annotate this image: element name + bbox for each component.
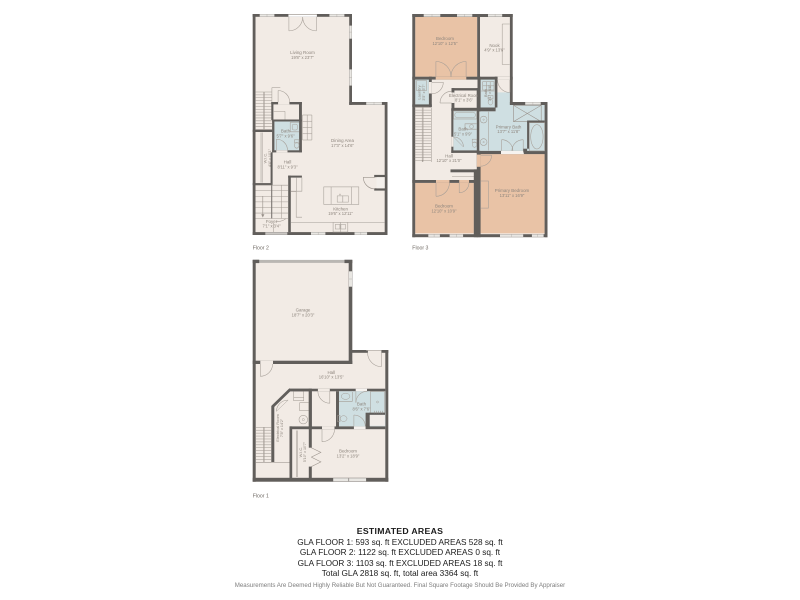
svg-text:W.I.C.: W.I.C. [298, 447, 303, 458]
svg-text:Floor 3: Floor 3 [412, 246, 428, 252]
svg-text:19'8" x 23'7": 19'8" x 23'7" [291, 55, 314, 60]
svg-text:13'2" x 18'9": 13'2" x 18'9" [337, 454, 360, 459]
svg-text:3'1" x 6'6": 3'1" x 6'6" [488, 84, 492, 101]
svg-text:12'10" x 10'9": 12'10" x 10'9" [431, 209, 457, 214]
svg-text:8'6" x 7'6": 8'6" x 7'6" [352, 407, 371, 412]
svg-text:Laundry: Laundry [417, 85, 422, 99]
svg-text:7'1" x 3'4": 7'1" x 3'4" [262, 224, 281, 229]
svg-text:W.I.C.: W.I.C. [263, 153, 268, 164]
svg-text:Floor 2: Floor 2 [253, 246, 269, 252]
svg-text:5'10" x 10'7": 5'10" x 10'7" [303, 441, 307, 462]
svg-text:5'7" x 9'6": 5'7" x 9'6" [276, 133, 295, 138]
svg-text:13'7" x 11'8": 13'7" x 11'8" [497, 129, 520, 134]
svg-text:Bath: Bath [483, 89, 488, 97]
svg-text:12'10" x 12'5": 12'10" x 12'5" [432, 41, 458, 46]
svg-text:17'3" x 14'6": 17'3" x 14'6" [331, 143, 354, 148]
svg-text:7'8" x 14'2": 7'8" x 14'2" [280, 418, 284, 437]
svg-text:8'1" x 3'6": 8'1" x 3'6" [455, 98, 473, 103]
svg-text:4'9" x 13'6": 4'9" x 13'6" [484, 48, 505, 53]
svg-text:8'11" x 9'3": 8'11" x 9'3" [277, 164, 298, 169]
svg-text:19'6" x 12'11": 19'6" x 12'11" [328, 211, 353, 216]
svg-text:13'11" x 16'9": 13'11" x 16'9" [500, 193, 525, 198]
svg-text:3'5" x 5'7": 3'5" x 5'7" [422, 84, 426, 101]
svg-text:5'1" x 9'9": 5'1" x 9'9" [454, 131, 473, 136]
svg-text:12'10" x 21'0": 12'10" x 21'0" [436, 158, 462, 163]
svg-text:Floor 1: Floor 1 [253, 494, 269, 500]
svg-text:16'10" x 13'5": 16'10" x 13'5" [319, 375, 345, 380]
svg-text:18'7" x 20'3": 18'7" x 20'3" [292, 312, 315, 317]
svg-text:Electrical Room: Electrical Room [275, 413, 280, 441]
